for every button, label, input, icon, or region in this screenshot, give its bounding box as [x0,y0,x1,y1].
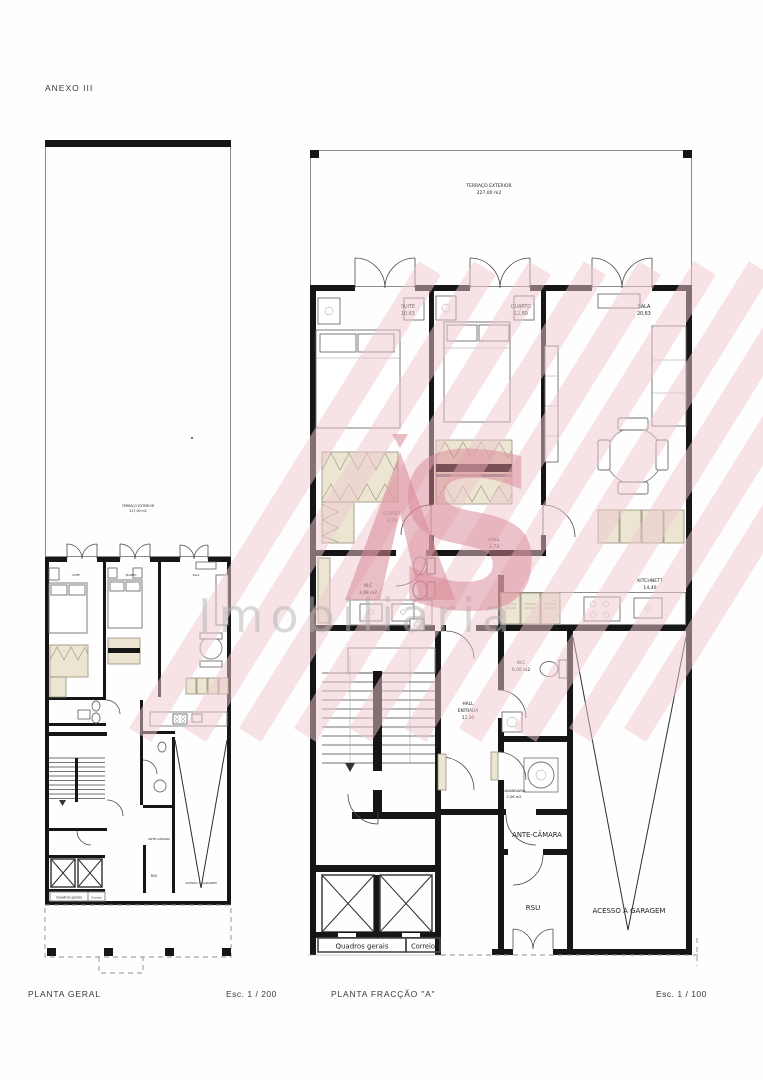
fa-terrace-outline [311,151,692,287]
caption-fraccao-title: PLANTA FRACÇÃO "A" [331,989,435,999]
plan-geral: TERRAÇO EXTERIOR 227,00 m2 [45,140,231,973]
geral-garage-wall [172,737,175,893]
fa-correio-label: Correio [411,943,435,951]
caption-geral-title: PLANTA GERAL [28,989,101,999]
geral-left-wall [45,557,49,905]
fa-hall-entrada-l1: HALL [463,701,475,707]
geral-acesso-label: ACESSO À GARAGEM [185,880,217,885]
geral-dashed-projection [45,905,231,973]
fa-terraco-label: TERRAÇO EXTERIOR [465,183,511,189]
fa-terrace-post-left [310,150,319,158]
fa-terraco-area: 227,00 m2 [477,190,502,196]
geral-top-wall [45,544,231,562]
fa-bottom-wall-a [492,949,513,955]
geral-wall-8 [143,845,146,893]
fa-kitchnett-area: 14,40 [643,585,656,591]
caption-geral-scale: Esc. 1 / 200 [226,989,277,999]
fa-terrace-post-right [683,150,692,158]
geral-elevators [49,855,105,892]
fa-rsu-double-door [513,929,553,949]
fa-front-door-leaf [438,754,446,790]
geral-terrace-outline [46,142,231,557]
geral-terrace-top-wall [45,140,231,147]
geral-wall-2 [158,562,161,697]
fa-quadros-label: Quadros gerais [335,943,388,951]
geral-wall-3 [49,697,106,700]
geral-quadros-label: Quadros gerais [56,896,82,900]
geral-garage-ramp [175,740,227,888]
geral-wall-4 [49,723,106,726]
geral-terraco-area: 227,00 m2 [129,509,146,513]
caption-fraccao-scale: Esc. 1 / 100 [656,989,707,999]
geral-correio-label: Correio [91,896,102,900]
geral-ante-camara-label: ANTE-CÂMARA [148,836,171,841]
fa-sala-area: 20,63 [637,311,651,317]
geral-terraco-label: TERRAÇO EXTERIOR [121,504,155,508]
fa-rsu-label: RSU [526,904,540,912]
watermark: Imobiliária S [140,268,763,735]
fa-bottom-wall-b [553,949,692,955]
fa-acesso-label: ACESSO À GARAGEM [593,906,666,915]
annex-label: ANEXO III [45,83,93,93]
geral-wall-1 [103,562,106,697]
geral-sala-label: SALA [193,573,200,577]
geral-wall-7 [143,805,175,808]
geral-suite-label: SUITE [72,573,80,577]
fa-lavandaria-area: 2,06 m2 [507,795,522,799]
geral-rsu-label: RSU [151,874,158,878]
geral-stairs [45,732,107,845]
floor-plan-drawing: ANEXO III TERRAÇO EXTERIOR 227,00 m2 [0,0,763,1080]
fa-ante-camara-label: ANTE-CÂMARA [512,830,562,839]
geral-terrace-mark [191,437,193,439]
geral-quarto-label: QUARTO [126,573,137,577]
captions: PLANTA GERAL Esc. 1 / 200 PLANTA FRACÇÃO… [28,989,707,999]
drawing-sheet: ANEXO III TERRAÇO EXTERIOR 227,00 m2 [0,0,763,1080]
fa-lavandaria-label: LAVANDARIA [503,789,526,793]
fa-rsu-door [513,855,543,885]
fa-elevators [316,865,441,938]
fa-ante-camara-door [506,815,536,845]
geral-bottom-wall [45,901,231,905]
